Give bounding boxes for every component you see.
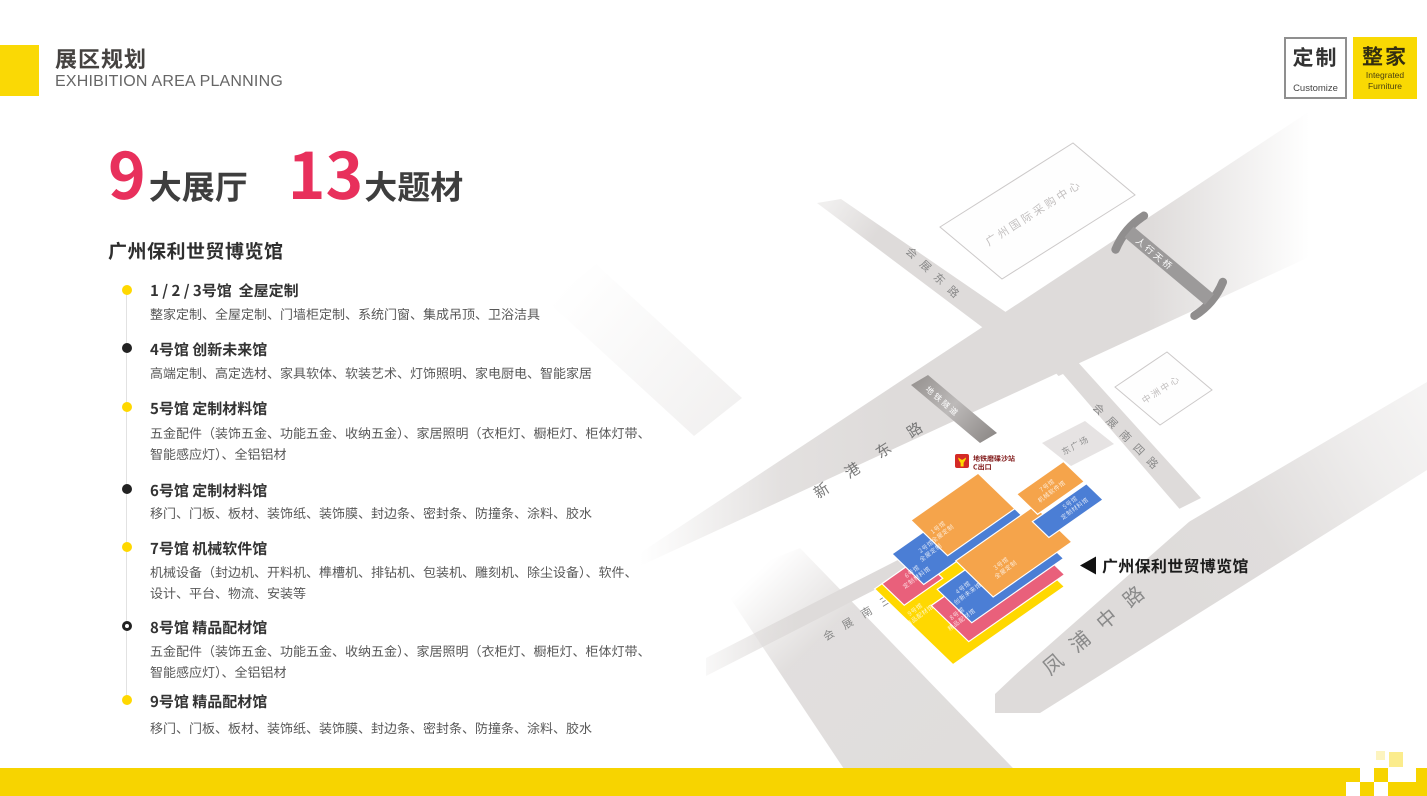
svg-text:C出口: C出口: [973, 463, 992, 473]
svg-text:广州保利世贸博览馆: 广州保利世贸博览馆: [1102, 553, 1249, 577]
svg-text:会展东路: 会展东路: [902, 243, 968, 307]
